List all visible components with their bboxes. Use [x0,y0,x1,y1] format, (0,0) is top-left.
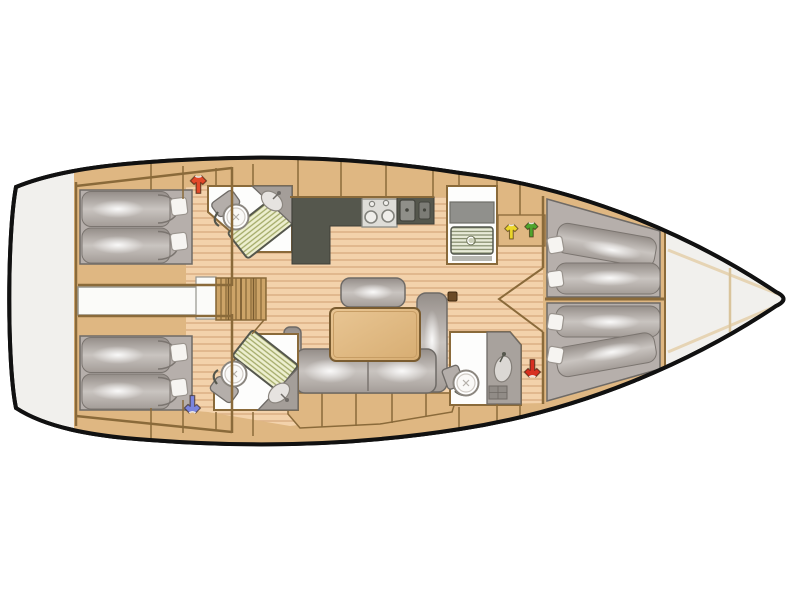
nav-station [447,186,497,264]
door-latch-icon [448,292,457,301]
aft-cabin-bottom [80,336,192,410]
faucet-icon [285,398,289,402]
burner-icon [382,210,394,222]
faucet-icon [502,352,506,356]
floor-plan-canvas [0,0,800,600]
midship-shelf [498,215,545,246]
faucet-icon [277,191,281,195]
pillow [547,346,565,364]
pillow [547,236,565,254]
pillow [547,313,564,331]
burner-icon [365,211,377,223]
pillow [170,232,188,251]
companionway-landing [196,277,216,319]
aft-cabin-top [80,190,192,264]
chart-table [450,202,494,223]
pillow [170,343,188,362]
pillow [170,197,188,216]
pillow [170,378,188,397]
head-forward [441,332,521,405]
yacht-floor-plan [0,0,800,600]
salon-table [330,308,420,361]
pillow [547,270,564,288]
